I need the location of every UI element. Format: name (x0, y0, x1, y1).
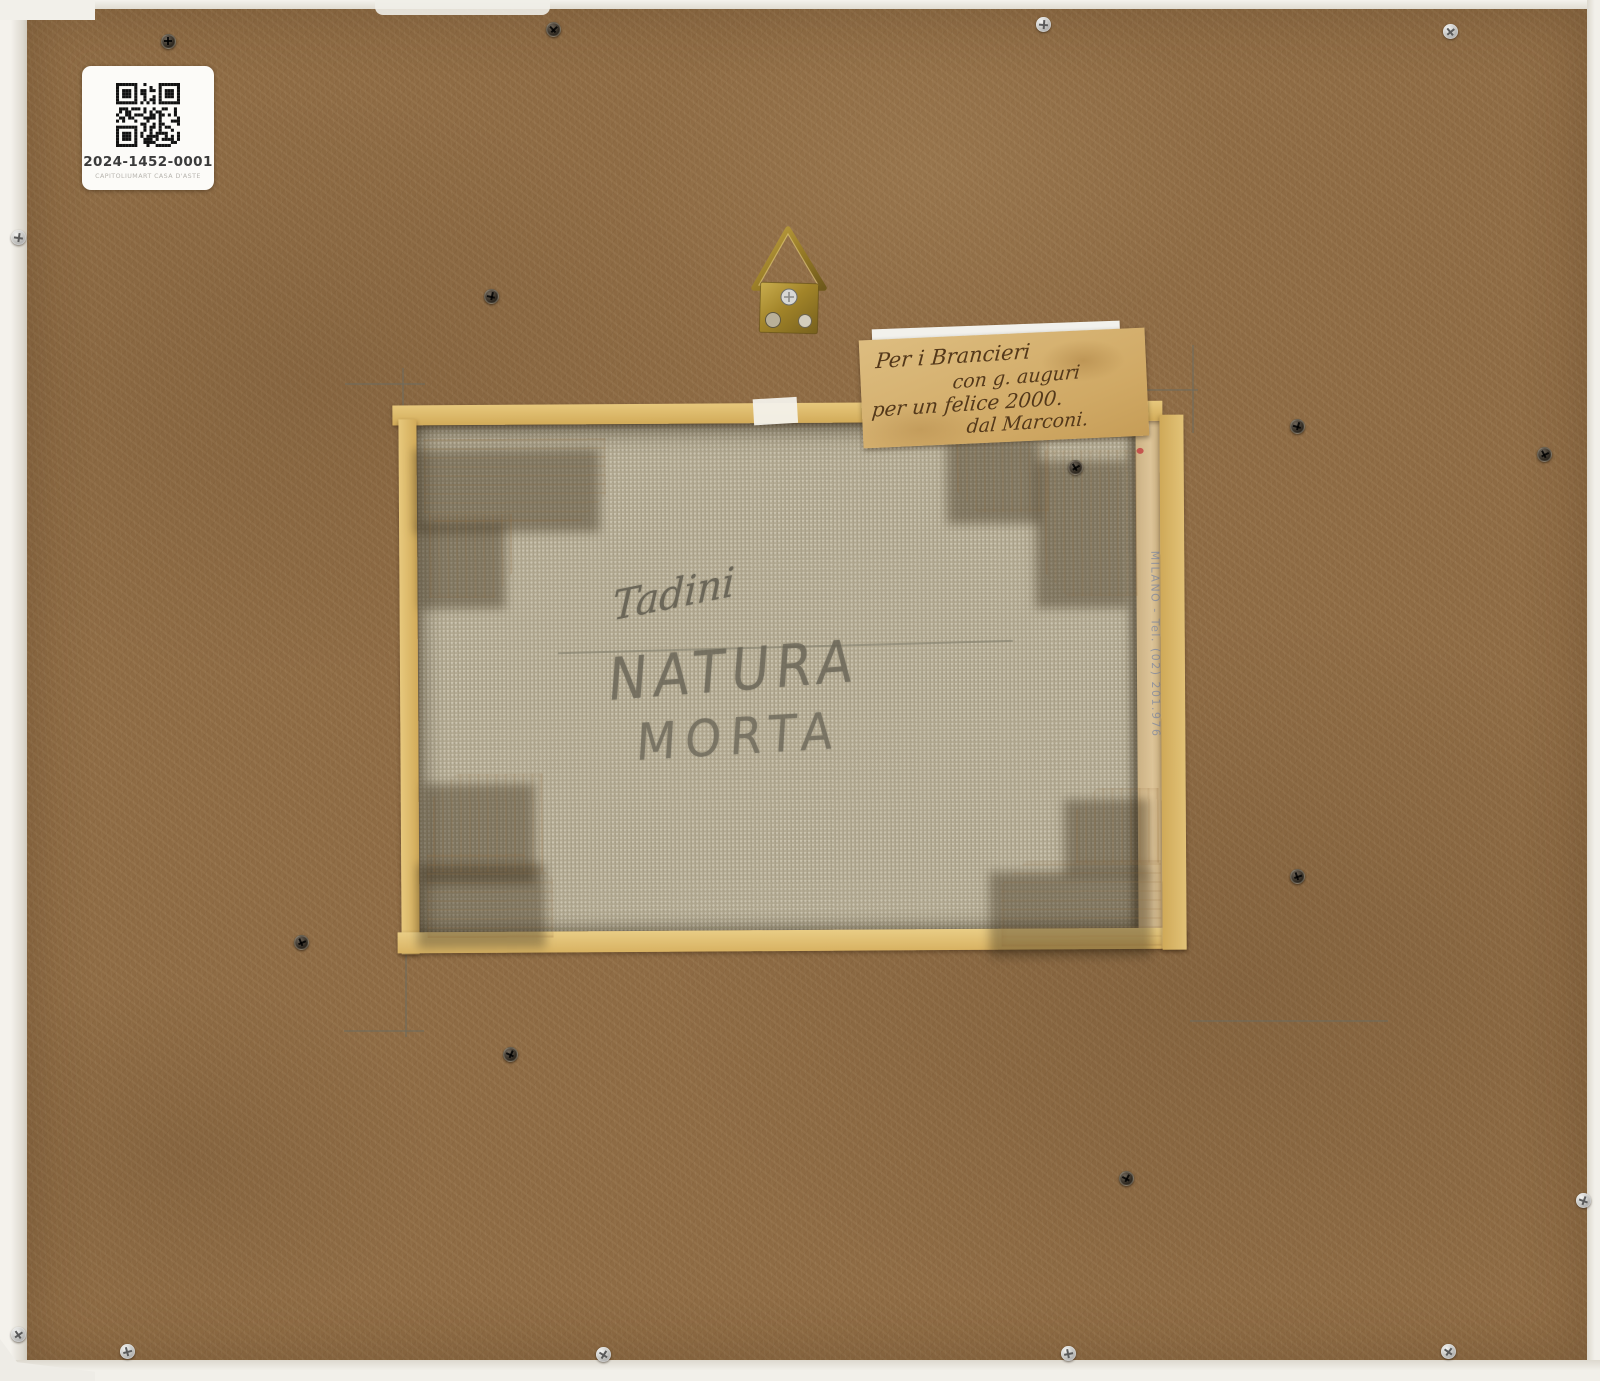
pencil-mark (1190, 1020, 1388, 1022)
pencil-mark (1192, 345, 1194, 433)
auction-label: 2024-1452-0001 CAPITOLIUMART CASA D'ASTE (82, 66, 214, 190)
screw (1537, 447, 1552, 462)
corner-brace (427, 853, 554, 938)
screw (503, 1047, 518, 1062)
corner-brace (1076, 788, 1159, 864)
frame-edge-top (0, 0, 1600, 9)
paint-speck (1137, 448, 1144, 454)
corner-brace (424, 438, 607, 522)
frame-edge-left (0, 0, 27, 1381)
screw (596, 1347, 611, 1362)
canvas-title-line: MORTA (635, 700, 844, 772)
triangle-hanger-icon (746, 224, 830, 340)
lath-right (1159, 415, 1186, 950)
frame-edge-bottom (0, 1360, 1600, 1381)
stretcher-frame: MILANO - Tel. (02) 201.976 Tadini NATURA… (398, 401, 1186, 955)
photo-artwork-back: MILANO - Tel. (02) 201.976 Tadini NATURA… (0, 0, 1600, 1381)
screw (546, 22, 561, 37)
pencil-mark (344, 1030, 424, 1032)
screw (1290, 419, 1305, 434)
screw (11, 230, 26, 245)
lot-code: 2024-1452-0001 (82, 154, 214, 170)
screw (161, 34, 176, 49)
screw (1036, 17, 1051, 32)
screw (1061, 1346, 1076, 1361)
pencil-mark (345, 383, 425, 385)
screw (484, 289, 499, 304)
screw (1576, 1193, 1591, 1208)
screw (120, 1344, 135, 1359)
corner-brace (429, 514, 513, 599)
auction-house-name: CAPITOLIUMART CASA D'ASTE (82, 173, 214, 180)
screw (1068, 460, 1083, 475)
paper-scrap (753, 397, 798, 426)
pencil-mark (402, 368, 404, 406)
screw (1441, 1344, 1456, 1359)
frame-edge-patch (375, 0, 550, 15)
frame-edge-right (1587, 0, 1600, 1381)
screw (1290, 869, 1305, 884)
frame-edge-patch (0, 0, 95, 20)
pencil-mark (405, 953, 407, 1037)
corner-brace (1001, 860, 1162, 947)
qr-code-icon (116, 83, 180, 147)
corner-brace (1045, 450, 1138, 597)
hanging-hardware (746, 224, 830, 340)
screw (11, 1327, 26, 1342)
screw (294, 935, 309, 950)
screw (1443, 24, 1458, 39)
screw (1119, 1171, 1134, 1186)
dedication-note: Per i Brancieri con g. auguri per un fel… (859, 328, 1150, 449)
